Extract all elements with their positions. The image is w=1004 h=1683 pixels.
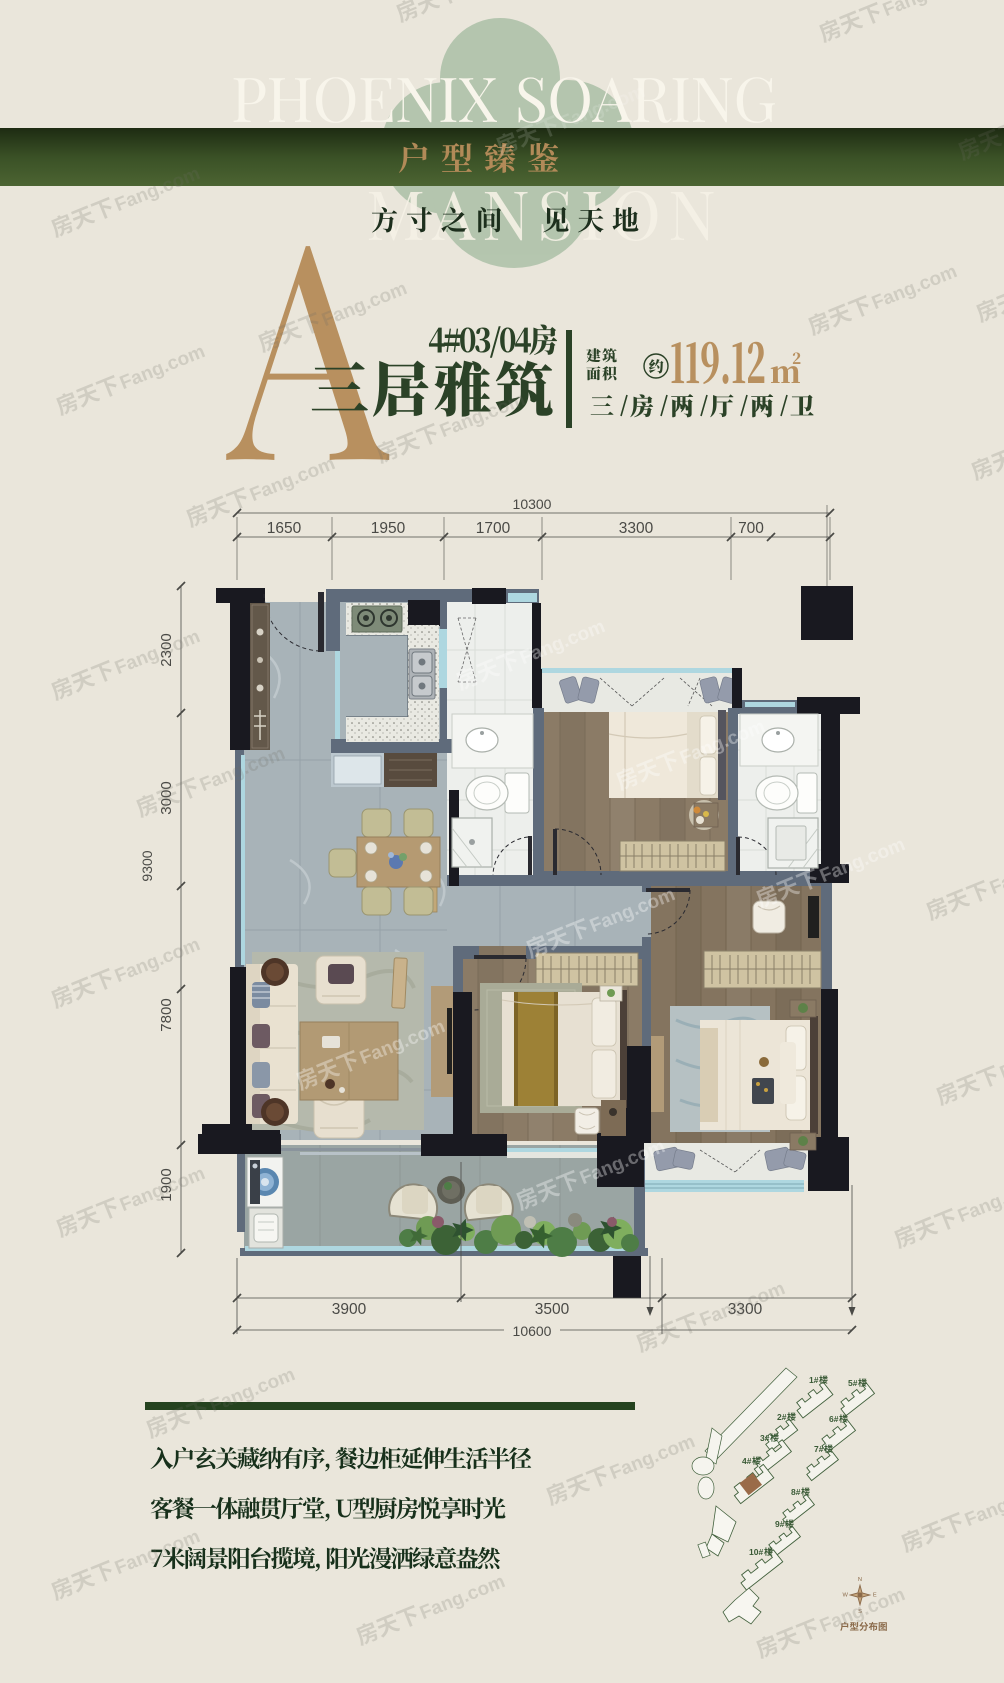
svg-text:4#: 4# <box>742 1456 752 1466</box>
svg-text:N: N <box>858 1577 862 1583</box>
svg-text:2#: 2# <box>777 1412 787 1422</box>
svg-text:Fang.com: Fang.com <box>112 1526 203 1579</box>
svg-text:1950: 1950 <box>371 520 406 537</box>
svg-text:Fang.com: Fang.com <box>697 1278 788 1331</box>
svg-text:Fang.com: Fang.com <box>417 1571 508 1624</box>
svg-text:1700: 1700 <box>476 520 511 537</box>
svg-text:5#: 5# <box>848 1378 858 1388</box>
svg-text:Fang.com: Fang.com <box>117 341 208 394</box>
svg-text:3500: 3500 <box>535 1301 570 1318</box>
svg-text:3#: 3# <box>760 1433 770 1443</box>
svg-text:Fang.com: Fang.com <box>955 1174 1004 1227</box>
svg-text:9#: 9# <box>775 1519 785 1529</box>
svg-text:6#: 6# <box>829 1414 839 1424</box>
svg-text:1650: 1650 <box>267 520 302 537</box>
svg-text:Fang.com: Fang.com <box>607 1431 698 1484</box>
svg-text:Fang.com: Fang.com <box>319 278 410 331</box>
svg-text:10#: 10# <box>749 1547 763 1557</box>
svg-text:Fang.com: Fang.com <box>997 1031 1004 1084</box>
svg-text:Fang.com: Fang.com <box>987 846 1004 899</box>
svg-text:10300: 10300 <box>513 496 552 512</box>
svg-text:700: 700 <box>738 520 764 537</box>
svg-text:10600: 10600 <box>513 1323 552 1339</box>
svg-text:7800: 7800 <box>158 998 175 1031</box>
svg-text:3900: 3900 <box>332 1301 367 1318</box>
svg-text:Fang.com: Fang.com <box>457 0 548 1</box>
svg-text:W: W <box>843 1593 849 1599</box>
svg-text:Fang.com: Fang.com <box>869 261 960 314</box>
svg-text:Fang.com: Fang.com <box>112 934 203 987</box>
svg-text:Fang.com: Fang.com <box>962 1478 1004 1531</box>
svg-text:7#: 7# <box>814 1444 824 1454</box>
svg-text:Fang.com: Fang.com <box>880 0 971 21</box>
svg-text:Fang.com: Fang.com <box>247 453 338 506</box>
svg-text:9300: 9300 <box>139 850 155 881</box>
svg-text:3300: 3300 <box>619 520 654 537</box>
svg-text:8#: 8# <box>791 1487 801 1497</box>
svg-text:1#: 1# <box>809 1375 819 1385</box>
